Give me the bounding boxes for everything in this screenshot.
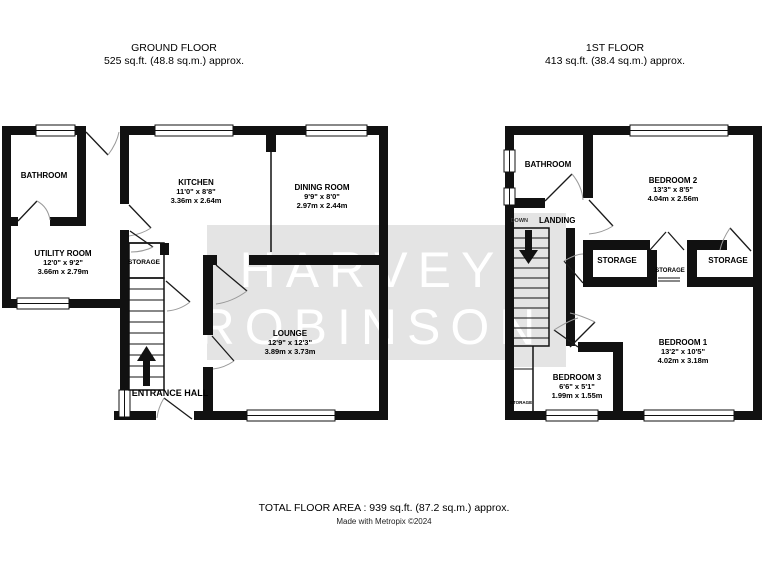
- floor-titles: GROUND FLOOR 525 sq.ft. (48.8 sq.m.) app…: [104, 42, 685, 67]
- label-entrance-hall: ENTRANCE HALL: [132, 388, 209, 398]
- label-storage-g: STORAGE: [128, 259, 161, 266]
- first-floor-title: 1ST FLOOR: [586, 42, 645, 54]
- label-bedroom2-imperial: 13'3" x 8'5": [653, 185, 693, 194]
- label-bathroom-1: BATHROOM: [525, 160, 572, 169]
- watermark-line2: ROBINSON: [199, 299, 546, 355]
- label-storage-understairs: STORAGE: [510, 400, 532, 405]
- floorplan-page: HARVEY ROBINSON: [0, 0, 768, 576]
- label-kitchen-imperial: 11'0" x 8'8": [176, 187, 216, 196]
- total-floor-area: TOTAL FLOOR AREA : 939 sq.ft. (87.2 sq.m…: [259, 502, 510, 514]
- footer: TOTAL FLOOR AREA : 939 sq.ft. (87.2 sq.m…: [259, 502, 510, 526]
- metropix-credit: Made with Metropix ©2024: [336, 517, 432, 526]
- label-storage-middle: STORAGE: [655, 268, 685, 274]
- label-dining: DINING ROOM: [294, 183, 349, 192]
- label-utility-metric: 3.66m x 2.79m: [38, 267, 89, 276]
- label-kitchen-metric: 3.36m x 2.64m: [171, 196, 222, 205]
- label-dining-imperial: 9'9" x 8'0": [304, 192, 340, 201]
- label-storage-left: STORAGE: [597, 256, 637, 265]
- label-down: DOWN: [511, 218, 528, 224]
- ground-floor-title: GROUND FLOOR: [131, 42, 217, 54]
- label-bedroom3: BEDROOM 3: [553, 373, 602, 382]
- label-bedroom2-metric: 4.04m x 2.56m: [648, 194, 699, 203]
- label-landing: LANDING: [539, 216, 575, 225]
- label-bedroom1-metric: 4.02m x 3.18m: [658, 356, 709, 365]
- label-utility-imperial: 12'0" x 9'2": [43, 258, 83, 267]
- label-bedroom1-imperial: 13'2" x 10'5": [661, 347, 705, 356]
- label-storage-right: STORAGE: [708, 256, 748, 265]
- label-lounge: LOUNGE: [273, 329, 308, 338]
- label-utility: UTILITY ROOM: [34, 249, 92, 258]
- label-lounge-imperial: 12'9" x 12'3": [268, 338, 312, 347]
- label-bathroom-g: BATHROOM: [21, 171, 68, 180]
- label-bedroom1: BEDROOM 1: [659, 338, 708, 347]
- label-bedroom3-metric: 1.99m x 1.55m: [552, 391, 603, 400]
- label-bedroom2: BEDROOM 2: [649, 176, 698, 185]
- floorplan-drawing: HARVEY ROBINSON: [0, 0, 768, 576]
- label-kitchen: KITCHEN: [178, 178, 214, 187]
- label-bedroom3-imperial: 6'6" x 5'1": [559, 382, 595, 391]
- first-floor-area: 413 sq.ft. (38.4 sq.m.) approx.: [545, 55, 685, 67]
- label-dining-metric: 2.97m x 2.44m: [297, 201, 348, 210]
- label-lounge-metric: 3.89m x 3.73m: [265, 347, 316, 356]
- watermark-line1: HARVEY: [240, 242, 505, 298]
- ground-floor-area: 525 sq.ft. (48.8 sq.m.) approx.: [104, 55, 244, 67]
